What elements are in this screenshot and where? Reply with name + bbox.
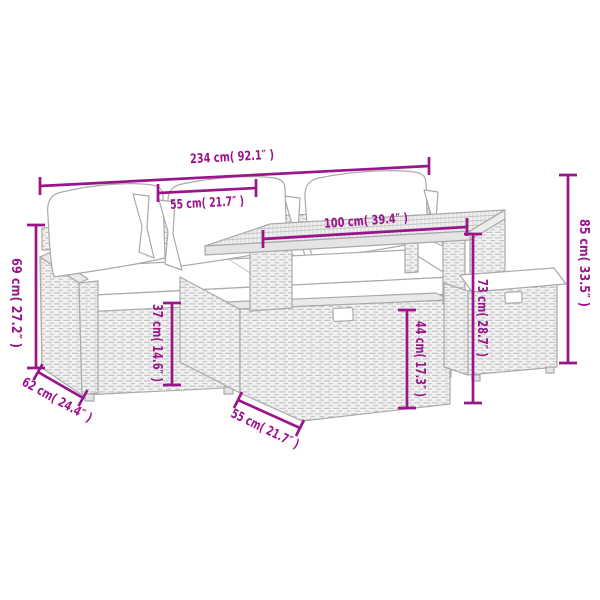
sofa-armrest-front <box>79 281 98 395</box>
dimension-storage-height-label: 44 cm( 17.3″ ) <box>412 321 427 397</box>
dimension-overall-height: 85 cm( 33.5″ ) <box>559 175 591 363</box>
furniture-dimension-illustration: 234 cm( 92.1″ ) 55 cm( 21.7″ ) 100 cm( 3… <box>0 0 600 600</box>
sofa-leg <box>85 394 94 401</box>
dimension-overall-width-label: 234 cm( 92.1″ ) <box>190 148 275 167</box>
dimension-table-height-label: 73 cm( 28.7″ ) <box>474 279 489 357</box>
table-leg-front-left <box>250 246 292 311</box>
dimension-back-height-label: 69 cm( 27.2″ ) <box>8 258 23 348</box>
dimension-seat-height-label: 37 cm( 14.6″ ) <box>149 304 164 382</box>
ottoman-handle-notch <box>505 292 523 304</box>
dimension-back-height: 69 cm( 27.2″ ) <box>8 225 45 368</box>
product-dimension-diagram: 234 cm( 92.1″ ) 55 cm( 21.7″ ) 100 cm( 3… <box>0 0 600 600</box>
dimension-overall-height-label: 85 cm( 33.5″ ) <box>576 219 591 307</box>
ottoman-leg <box>546 367 554 373</box>
ottoman-side <box>444 283 468 375</box>
table-handle-notch <box>333 307 354 321</box>
